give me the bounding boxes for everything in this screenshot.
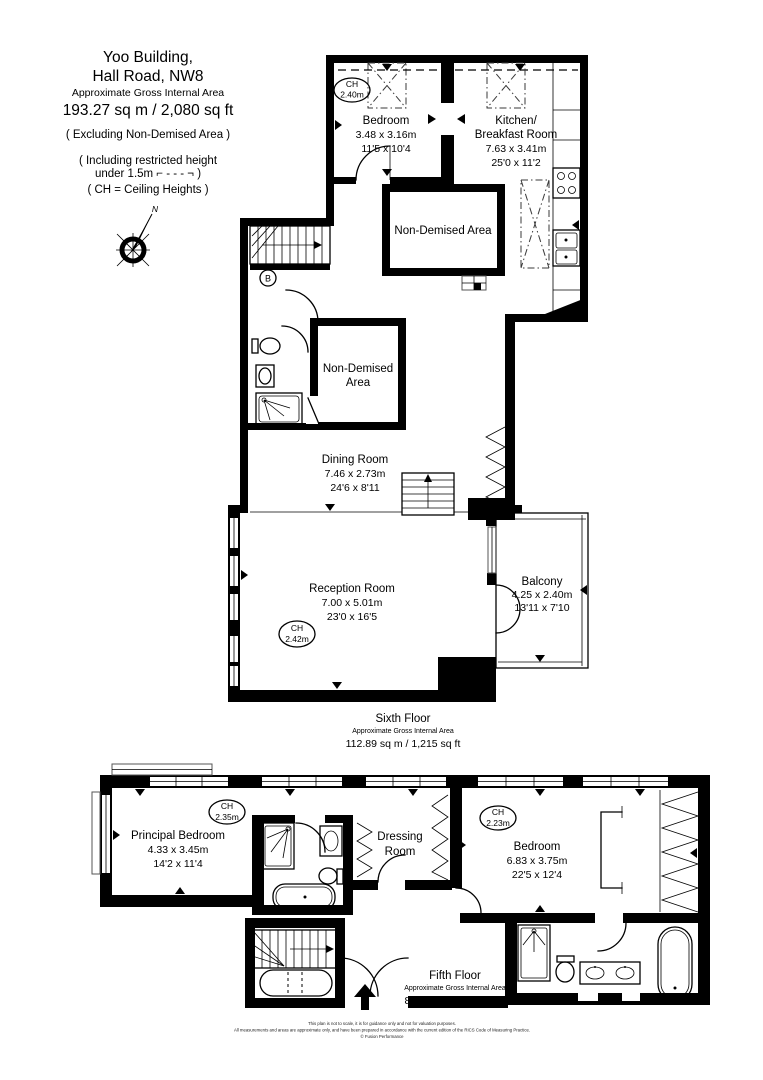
toilet-cistern xyxy=(252,339,258,353)
fifth-floor-area-label: Approximate Gross Internal Area xyxy=(404,985,506,992)
kitchen-dims-m: 7.63 x 3.41m xyxy=(486,143,547,155)
entrance-arrow-icon xyxy=(354,984,376,997)
non-demised-large-label: Non-Demised Area xyxy=(394,225,492,237)
non-demised-area-large: Non-Demised Area xyxy=(382,184,505,290)
basin xyxy=(259,368,271,384)
door-arc xyxy=(598,923,626,951)
bedroom-name: Bedroom xyxy=(363,115,410,127)
reception-dims-m: 7.00 x 5.01m xyxy=(322,597,383,609)
kitchen-counter xyxy=(553,63,580,314)
hob xyxy=(553,168,580,198)
non-demised-small-label-2: Area xyxy=(346,377,371,389)
balcony-dims-m: 4.25 x 2.40m xyxy=(512,589,573,601)
disclaimer-line-2: All measurements and areas are approxima… xyxy=(234,1028,530,1033)
ensuite-bathroom xyxy=(262,823,343,910)
shower xyxy=(518,925,550,981)
principal-ch-value: 2.35m xyxy=(215,812,239,822)
bedroom5-dims-ft: 22'5 x 12'4 xyxy=(512,869,562,881)
header: Yoo Building, Hall Road, NW8 Approximate… xyxy=(63,49,234,196)
shower xyxy=(262,823,294,869)
shower xyxy=(256,393,302,425)
steps xyxy=(402,473,454,515)
kitchen-dims-ft: 25'0 x 11'2 xyxy=(491,157,541,169)
principal-dims-m: 4.33 x 3.45m xyxy=(148,844,209,856)
entrance xyxy=(340,958,408,1010)
bedroom-dims-ft: 11'5 x 10'4 xyxy=(361,143,411,155)
bay-window xyxy=(92,792,100,874)
bedroom-dims-m: 3.48 x 3.16m xyxy=(356,129,417,141)
floorplan-svg: Yoo Building, Hall Road, NW8 Approximate… xyxy=(0,0,763,1080)
non-demised-area-small: Non-Demised Area xyxy=(306,318,406,430)
area-label: Approximate Gross Internal Area xyxy=(72,87,224,99)
toilet xyxy=(319,868,343,884)
principal-bedroom: CH 2.35m Principal Bedroom 4.33 x 3.45m … xyxy=(131,800,245,870)
sixth-floor-title: Sixth Floor xyxy=(376,713,431,725)
door-arc xyxy=(378,855,405,882)
principal-name: Principal Bedroom xyxy=(131,830,225,842)
lower-flight xyxy=(260,970,332,996)
entrance-door-arc xyxy=(340,958,378,996)
kitchen-name-2: Breakfast Room xyxy=(475,129,557,141)
sixth-floor-plan: Non-Demised Area Non-Demised Area xyxy=(228,55,588,750)
area-value: 193.27 sq m / 2,080 sq ft xyxy=(63,102,234,119)
bedroom5-dims-m: 6.83 x 3.75m xyxy=(507,855,568,867)
dining-name: Dining Room xyxy=(322,454,388,466)
disclaimer-line-3: © Fusion Performance xyxy=(360,1034,404,1039)
bedroom-ch-label: CH xyxy=(346,79,358,89)
toilet xyxy=(556,956,574,982)
entrance-door-arc xyxy=(370,958,408,996)
bifold-closet-doors xyxy=(432,795,448,880)
reception-room: Reception Room 7.00 x 5.01m 23'0 x 16'5 … xyxy=(279,583,395,647)
bedroom5-ch-value: 2.23m xyxy=(486,818,510,828)
family-bathroom xyxy=(518,923,692,1001)
balcony-dims-ft: 13'11 x 7'10 xyxy=(514,602,569,614)
compass-north-label: N xyxy=(152,204,159,214)
bedroom5-ch-label: CH xyxy=(492,807,504,817)
floorplan-page: Yoo Building, Hall Road, NW8 Approximate… xyxy=(0,0,763,1080)
disclaimer-line-1: This plan is not to scale, it is for gui… xyxy=(308,1021,456,1026)
reception-ch-value: 2.42m xyxy=(285,634,309,644)
stairs-up xyxy=(250,226,330,264)
riser-b-label: B xyxy=(265,274,271,284)
fifth-floor-plan: CH 2.35m Principal Bedroom 4.33 x 3.45m … xyxy=(92,764,710,1010)
non-demised-small-label-1: Non-Demised xyxy=(323,363,393,375)
fifth-floor-title: Fifth Floor xyxy=(429,970,481,982)
bathtub xyxy=(658,927,692,1001)
window xyxy=(150,777,228,786)
door-arc xyxy=(456,888,481,913)
reception-dims-ft: 23'0 x 16'5 xyxy=(327,611,377,623)
dressing-room: Dressing Room xyxy=(357,795,448,882)
principal-ch-label: CH xyxy=(221,801,233,811)
fifth-walls xyxy=(100,775,710,1008)
fifth-floor-area-value: 80.37 sq m / 865 sq ft xyxy=(405,995,506,1007)
wc-fixtures xyxy=(252,326,308,425)
window xyxy=(102,795,110,873)
restricted-note-1: ( Including restricted height xyxy=(79,155,218,167)
headboard xyxy=(601,812,622,888)
toilet xyxy=(260,338,280,354)
door-arc xyxy=(286,290,318,322)
bedroom-5f: CH 2.23m Bedroom 6.83 x 3.75m 22'5 x 12'… xyxy=(456,790,698,913)
sixth-floor-area-label: Approximate Gross Internal Area xyxy=(352,728,454,735)
principal-dims-ft: 14'2 x 11'4 xyxy=(153,858,203,870)
sink xyxy=(553,230,580,266)
sixth-floor-area-value: 112.89 sq m / 1,215 sq ft xyxy=(346,738,461,750)
reception-name: Reception Room xyxy=(309,583,395,595)
window xyxy=(583,777,668,786)
balcony-name: Balcony xyxy=(522,576,563,588)
reception-ch-label: CH xyxy=(291,623,303,633)
double-basin-unit xyxy=(580,962,640,984)
excluding-note: ( Excluding Non-Demised Area ) xyxy=(66,129,230,141)
ch-note: ( CH = Ceiling Heights ) xyxy=(87,184,208,196)
rooflight-hatch xyxy=(521,180,549,268)
dining-dims-ft: 24'6 x 8'11 xyxy=(330,482,380,494)
bedroom-ch-value: 2.40m xyxy=(340,90,364,100)
stairs-down xyxy=(252,930,338,996)
disclaimer-footer: This plan is not to scale, it is for gui… xyxy=(234,1021,530,1039)
bedroom5-name: Bedroom xyxy=(514,841,561,853)
bedroom-6f: CH 2.40m Bedroom 3.48 x 3.16m 11'5 x 10'… xyxy=(334,63,417,180)
balcony: Balcony 4.25 x 2.40m 13'11 x 7'10 xyxy=(488,513,588,668)
dining-room: Dining Room 7.46 x 2.73m 24'6 x 8'11 xyxy=(250,427,505,515)
fifth-floor-caption: Fifth Floor Approximate Gross Internal A… xyxy=(404,970,506,1007)
entrance-arrow-stem xyxy=(361,997,369,1010)
dressing-name-1: Dressing xyxy=(377,831,422,843)
sixth-floor-caption: Sixth Floor Approximate Gross Internal A… xyxy=(346,713,461,750)
compass-icon: N xyxy=(116,204,159,267)
dressing-name-2: Room xyxy=(385,846,416,858)
window xyxy=(262,777,342,786)
window xyxy=(366,777,446,786)
door-arc xyxy=(282,326,308,352)
dining-dims-m: 7.46 x 2.73m xyxy=(325,468,386,480)
restricted-note-2: under 1.5m ⌐ - - - ¬ ) xyxy=(95,168,201,180)
building-address: Hall Road, NW8 xyxy=(92,68,203,85)
bifold-closet-doors xyxy=(357,823,372,877)
bifold-closet-doors xyxy=(486,427,505,505)
reception-windows xyxy=(230,518,238,686)
kitchen-name-1: Kitchen/ xyxy=(495,115,537,127)
building-name: Yoo Building, xyxy=(103,49,193,66)
riser-b: B xyxy=(260,270,318,322)
window xyxy=(478,777,563,786)
